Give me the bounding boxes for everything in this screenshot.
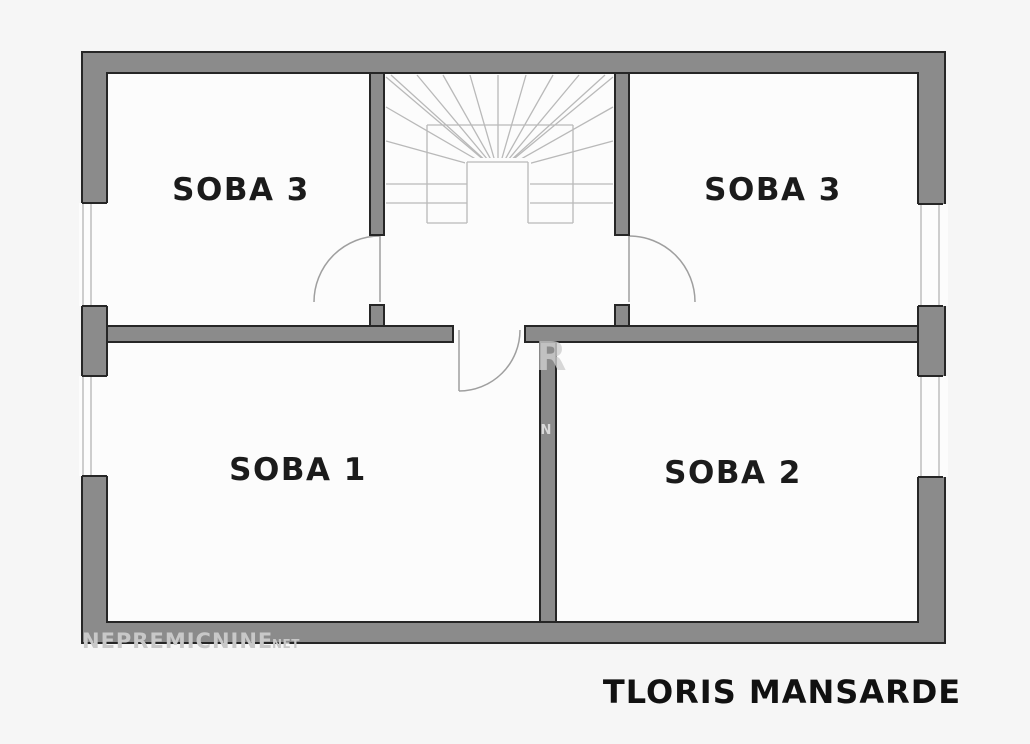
room-label-soba2: SOBA 2 bbox=[664, 455, 802, 491]
window-left-lower bbox=[79, 376, 110, 476]
watermark-text: NEPREMICNINE bbox=[82, 629, 273, 653]
watermark-suffix: NET bbox=[272, 637, 300, 651]
floor-plan-page: SOBA 3 SOBA 3 SOBA 1 SOBA 2 TLORIS MANSA… bbox=[0, 0, 1030, 744]
wall-stub-left bbox=[370, 305, 384, 327]
window-left-upper bbox=[79, 203, 110, 306]
plan-caption: TLORIS MANSARDE bbox=[603, 673, 961, 711]
plan-interior bbox=[95, 62, 935, 632]
watermark-center-letter-n: N bbox=[541, 423, 552, 438]
interior-wall-vertical bbox=[540, 342, 556, 622]
wall-stub-right bbox=[615, 305, 629, 327]
stair-wall-right bbox=[615, 73, 629, 235]
watermark-center-letter-r: R bbox=[536, 334, 567, 380]
stair-void-mask bbox=[465, 158, 531, 226]
room-label-soba3-left: SOBA 3 bbox=[172, 172, 310, 208]
interior-wall-horizontal-left bbox=[107, 326, 453, 342]
floor-plan-drawing: SOBA 3 SOBA 3 SOBA 1 SOBA 2 TLORIS MANSA… bbox=[0, 0, 1030, 744]
watermark-bottom-left: NEPREMICNINE NET bbox=[82, 629, 300, 653]
window-right-lower bbox=[917, 376, 948, 477]
interior-wall-horizontal-right bbox=[525, 326, 918, 342]
stair-wall-left bbox=[370, 73, 384, 235]
window-right-upper bbox=[917, 204, 948, 306]
room-label-soba3-right: SOBA 3 bbox=[704, 172, 842, 208]
room-label-soba1: SOBA 1 bbox=[229, 452, 367, 488]
